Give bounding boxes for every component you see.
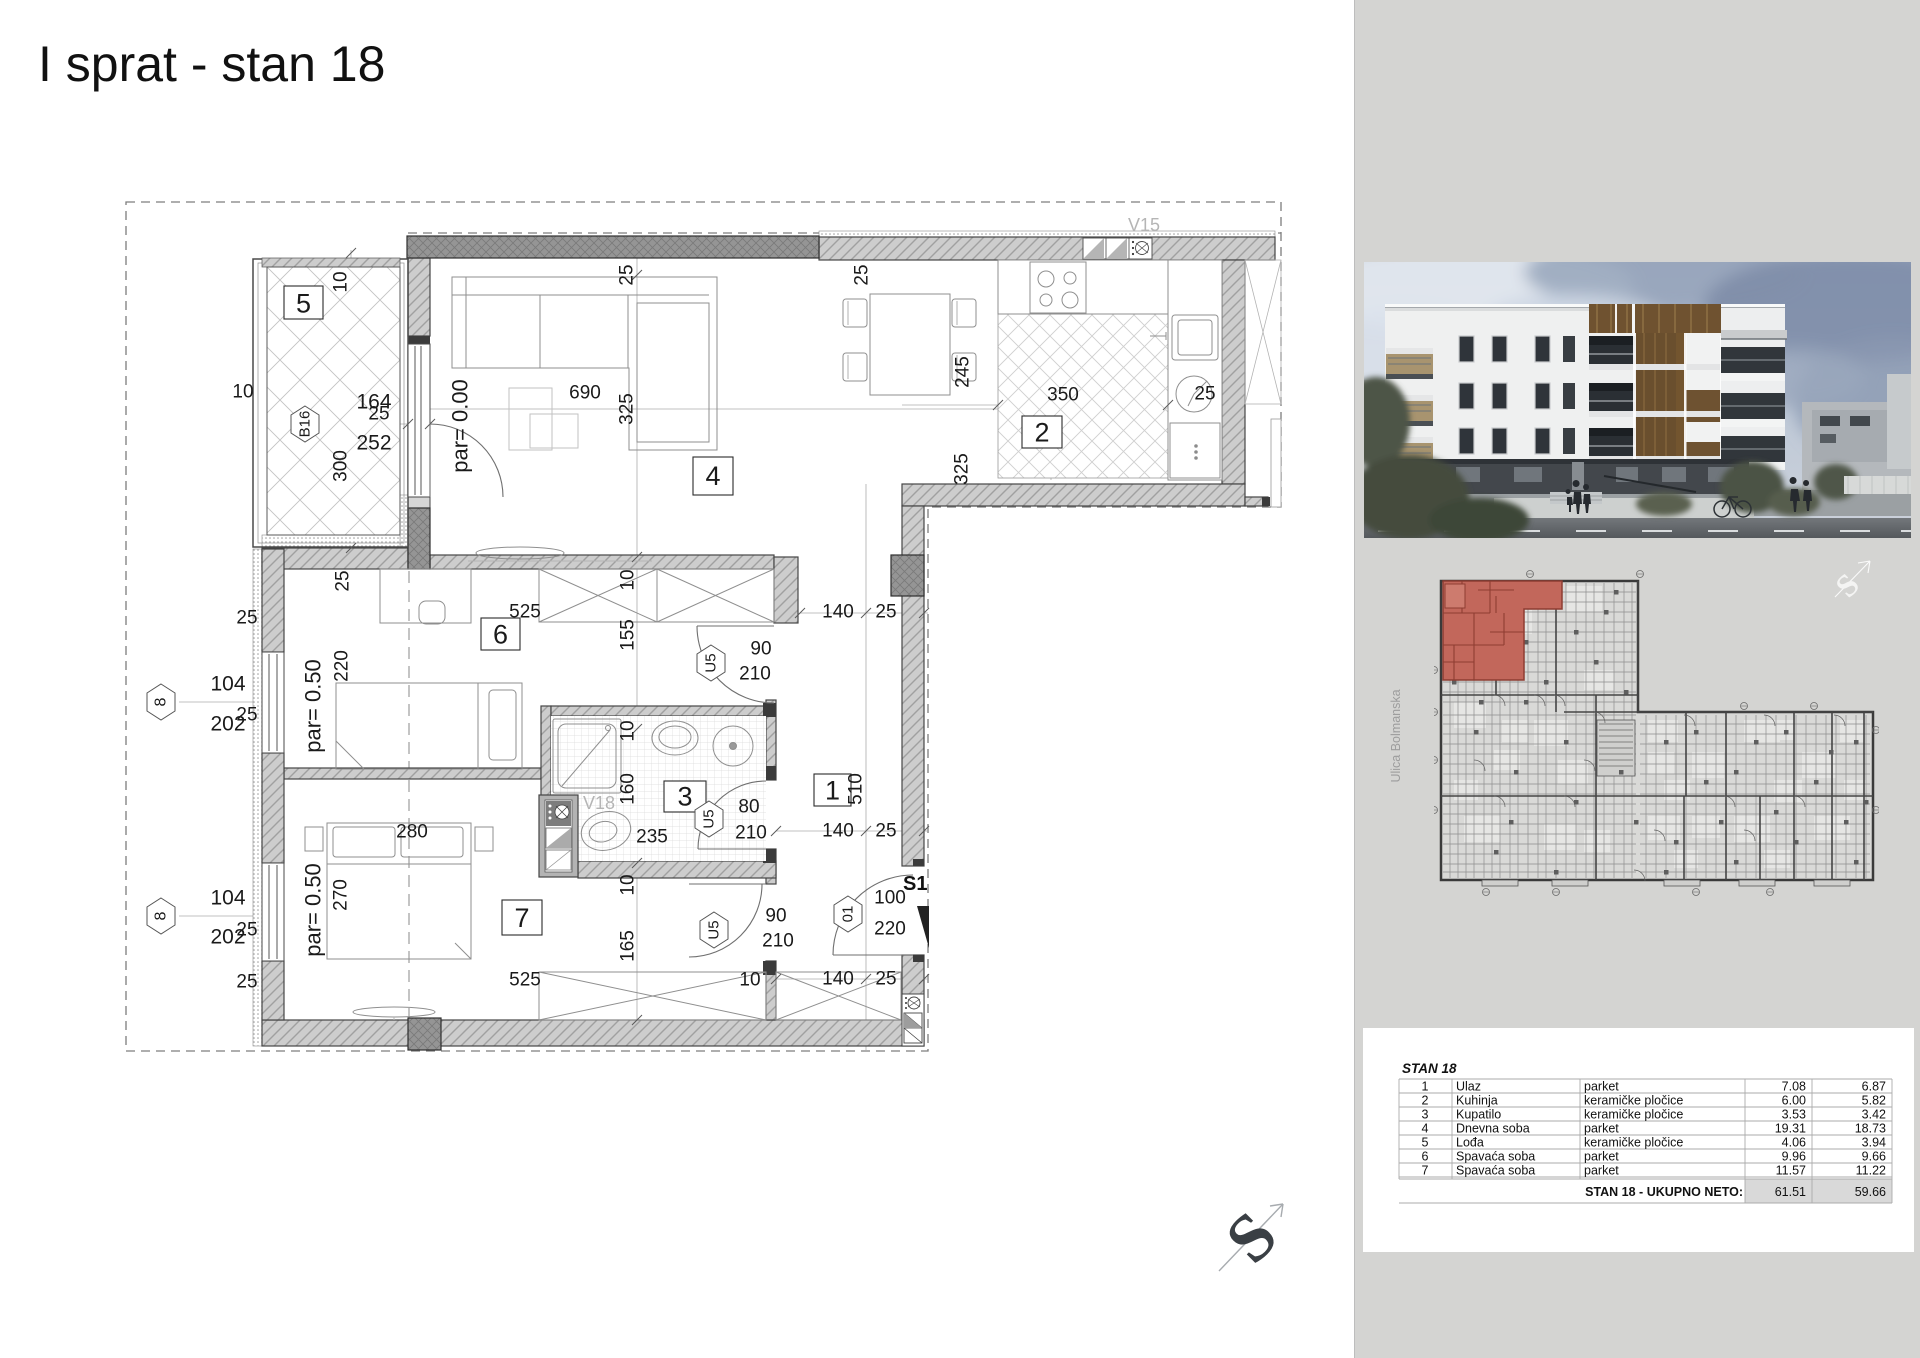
svg-text:1: 1 — [825, 776, 840, 806]
svg-text:160: 160 — [618, 773, 639, 805]
svg-text:par= 0.50: par= 0.50 — [301, 659, 326, 753]
svg-text:Spavaća soba: Spavaća soba — [1456, 1150, 1535, 1164]
svg-text:25: 25 — [368, 404, 389, 425]
svg-text:9.96: 9.96 — [1782, 1150, 1806, 1164]
svg-text:8: 8 — [153, 911, 170, 920]
svg-text:61.51: 61.51 — [1775, 1185, 1806, 1199]
svg-text:U5: U5 — [706, 920, 723, 939]
svg-text:510: 510 — [846, 773, 867, 805]
svg-text:25: 25 — [236, 705, 257, 726]
svg-text:5.82: 5.82 — [1862, 1094, 1886, 1108]
svg-text:par= 0.50: par= 0.50 — [301, 863, 326, 957]
svg-text:STAN 18 - UKUPNO NETO:: STAN 18 - UKUPNO NETO: — [1585, 1185, 1743, 1199]
svg-text:9.66: 9.66 — [1862, 1150, 1886, 1164]
svg-text:690: 690 — [569, 383, 601, 404]
svg-text:25: 25 — [875, 969, 896, 990]
svg-text:325: 325 — [952, 453, 973, 485]
svg-text:parket: parket — [1584, 1122, 1619, 1136]
svg-text:U5: U5 — [703, 653, 720, 672]
svg-text:4.06: 4.06 — [1782, 1136, 1806, 1150]
svg-text:325: 325 — [617, 393, 638, 425]
svg-text:10: 10 — [739, 970, 760, 991]
svg-text:104: 104 — [210, 673, 245, 696]
svg-text:140: 140 — [822, 821, 854, 842]
svg-text:80: 80 — [738, 797, 759, 818]
svg-text:140: 140 — [822, 969, 854, 990]
svg-text:11.57: 11.57 — [1776, 1164, 1806, 1178]
svg-text:parket: parket — [1584, 1080, 1619, 1094]
svg-text:V15: V15 — [1128, 215, 1160, 235]
svg-text:3.42: 3.42 — [1862, 1108, 1886, 1122]
svg-text:10: 10 — [618, 720, 639, 741]
svg-text:280: 280 — [396, 822, 428, 843]
svg-text:4: 4 — [705, 461, 720, 491]
svg-text:210: 210 — [762, 931, 794, 952]
svg-text:parket: parket — [1584, 1164, 1619, 1178]
svg-text:525: 525 — [509, 970, 541, 991]
svg-text:10: 10 — [331, 271, 352, 292]
svg-text:245: 245 — [953, 356, 974, 388]
svg-text:100: 100 — [874, 888, 906, 909]
svg-text:5: 5 — [296, 289, 311, 319]
svg-text:keramičke pločice: keramičke pločice — [1584, 1136, 1683, 1150]
svg-text:2: 2 — [1034, 418, 1049, 448]
svg-text:Dnevna soba: Dnevna soba — [1456, 1122, 1530, 1136]
svg-text:6: 6 — [493, 620, 508, 650]
svg-text:25: 25 — [875, 821, 896, 842]
svg-text:par= 0.00: par= 0.00 — [448, 379, 473, 473]
svg-text:10: 10 — [232, 382, 253, 403]
svg-text:300: 300 — [331, 450, 352, 482]
svg-text:Ulica Bolmanska: Ulica Bolmanska — [1389, 689, 1403, 782]
svg-text:S1: S1 — [903, 873, 927, 895]
svg-text:3: 3 — [677, 782, 692, 812]
svg-text:18.73: 18.73 — [1855, 1122, 1886, 1136]
svg-text:25: 25 — [236, 972, 257, 993]
svg-text:3: 3 — [1422, 1108, 1429, 1122]
svg-text:7: 7 — [514, 903, 529, 933]
svg-text:parket: parket — [1584, 1150, 1619, 1164]
svg-text:210: 210 — [739, 664, 771, 685]
svg-text:25: 25 — [875, 602, 896, 623]
svg-text:7.08: 7.08 — [1782, 1080, 1806, 1094]
svg-text:Lođa: Lođa — [1456, 1136, 1484, 1150]
svg-text:4: 4 — [1422, 1122, 1429, 1136]
svg-text:2: 2 — [1422, 1094, 1429, 1108]
svg-text:25: 25 — [1194, 384, 1215, 405]
svg-text:01: 01 — [840, 906, 857, 923]
svg-text:B16: B16 — [297, 411, 314, 438]
svg-text:252: 252 — [356, 432, 391, 455]
svg-text:19.31: 19.31 — [1775, 1122, 1806, 1136]
svg-text:25: 25 — [852, 264, 873, 285]
svg-text:6.87: 6.87 — [1862, 1080, 1886, 1094]
svg-text:V18: V18 — [583, 793, 615, 813]
svg-text:25: 25 — [333, 570, 354, 591]
svg-text:6: 6 — [1422, 1150, 1429, 1164]
svg-text:11.22: 11.22 — [1856, 1164, 1886, 1178]
svg-text:90: 90 — [765, 906, 786, 927]
svg-text:25: 25 — [236, 608, 257, 629]
svg-text:7: 7 — [1422, 1164, 1429, 1178]
svg-text:keramičke pločice: keramičke pločice — [1584, 1094, 1683, 1108]
svg-text:220: 220 — [874, 919, 906, 940]
svg-text:Spavaća soba: Spavaća soba — [1456, 1164, 1535, 1178]
svg-text:8: 8 — [153, 697, 170, 706]
svg-text:STAN 18: STAN 18 — [1402, 1061, 1457, 1076]
svg-text:270: 270 — [331, 879, 352, 911]
svg-text:keramičke pločice: keramičke pločice — [1584, 1108, 1683, 1122]
svg-text:Kuhinja: Kuhinja — [1456, 1094, 1498, 1108]
svg-text:1: 1 — [1422, 1080, 1429, 1094]
svg-text:165: 165 — [618, 930, 639, 962]
svg-text:25: 25 — [236, 920, 257, 941]
svg-text:525: 525 — [509, 602, 541, 623]
svg-text:140: 140 — [822, 602, 854, 623]
svg-text:90: 90 — [750, 639, 771, 660]
svg-text:210: 210 — [735, 823, 767, 844]
svg-text:25: 25 — [617, 264, 638, 285]
svg-text:3.94: 3.94 — [1862, 1136, 1886, 1150]
svg-text:5: 5 — [1422, 1136, 1429, 1150]
svg-text:235: 235 — [636, 827, 668, 848]
svg-text:59.66: 59.66 — [1855, 1185, 1886, 1199]
svg-text:6.00: 6.00 — [1782, 1094, 1806, 1108]
svg-text:10: 10 — [618, 569, 639, 590]
svg-text:Ulaz: Ulaz — [1456, 1080, 1481, 1094]
svg-text:U5: U5 — [701, 809, 718, 828]
svg-text:10: 10 — [618, 874, 639, 895]
svg-text:155: 155 — [618, 619, 639, 651]
svg-text:220: 220 — [332, 650, 353, 682]
svg-text:104: 104 — [210, 887, 245, 910]
svg-text:Kupatilo: Kupatilo — [1456, 1108, 1501, 1122]
svg-text:350: 350 — [1047, 385, 1079, 406]
svg-text:3.53: 3.53 — [1782, 1108, 1806, 1122]
